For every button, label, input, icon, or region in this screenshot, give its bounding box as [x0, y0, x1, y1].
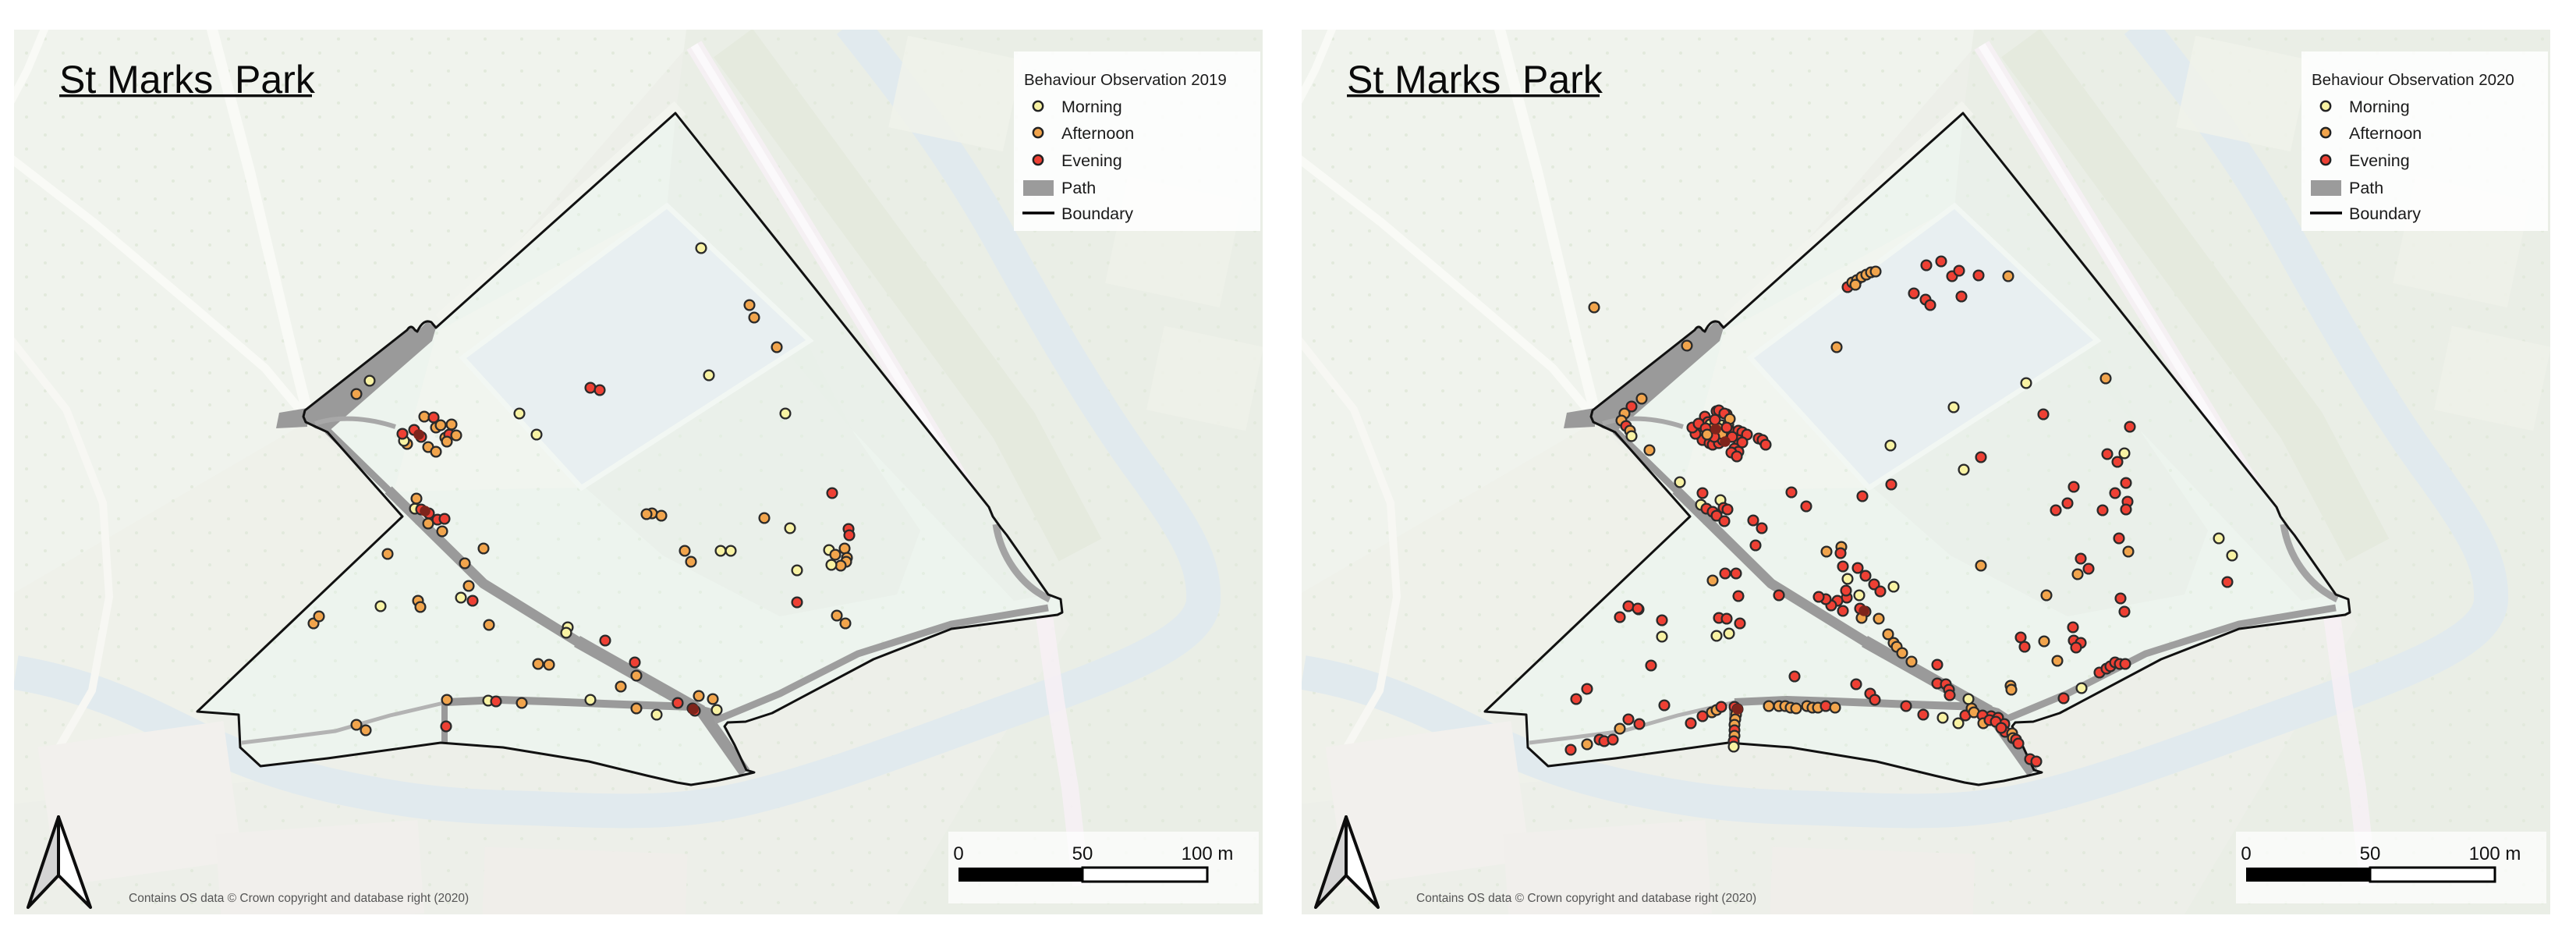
svg-text:Evening: Evening [2349, 151, 2410, 170]
svg-text:Afternoon: Afternoon [1061, 124, 1134, 143]
svg-text:100 m: 100 m [2469, 843, 2521, 864]
svg-text:Afternoon: Afternoon [2349, 124, 2422, 143]
svg-text:100 m: 100 m [1182, 843, 1234, 864]
svg-text:Path: Path [2349, 179, 2383, 197]
svg-text:50: 50 [1072, 843, 1093, 864]
svg-text:Contains OS data © Crown copyr: Contains OS data © Crown copyright and d… [129, 892, 469, 905]
svg-text:50: 50 [2360, 843, 2381, 864]
svg-text:Contains OS data © Crown copyr: Contains OS data © Crown copyright and d… [1416, 892, 1756, 905]
svg-text:0: 0 [953, 843, 963, 864]
svg-text:Evening: Evening [1061, 151, 1122, 170]
svg-text:Path: Path [1061, 179, 1096, 197]
svg-text:Morning: Morning [1061, 98, 1122, 116]
svg-text:Behaviour Observation 2020: Behaviour Observation 2020 [2312, 71, 2514, 89]
svg-text:Morning: Morning [2349, 98, 2410, 116]
svg-text:0: 0 [2241, 843, 2251, 864]
svg-text:Boundary: Boundary [1061, 204, 1133, 223]
svg-text:Behaviour Observation 2019: Behaviour Observation 2019 [1024, 71, 1227, 89]
svg-text:Boundary: Boundary [2349, 204, 2421, 223]
